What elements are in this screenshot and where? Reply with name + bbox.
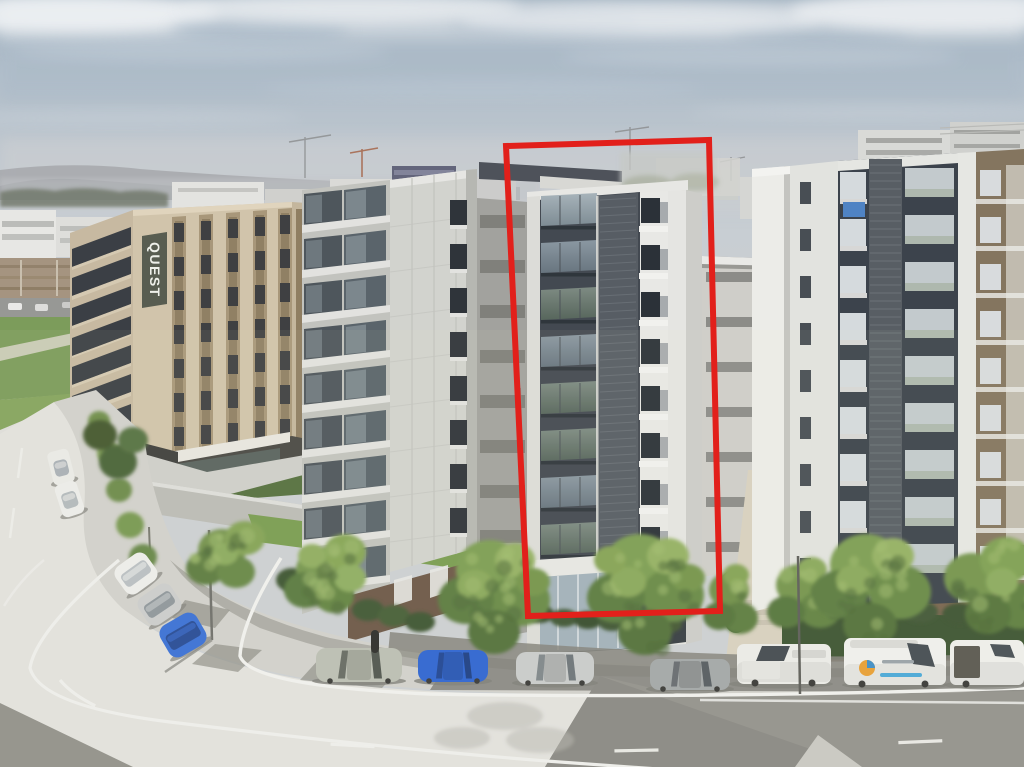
- svg-text:QUEST: QUEST: [147, 242, 163, 298]
